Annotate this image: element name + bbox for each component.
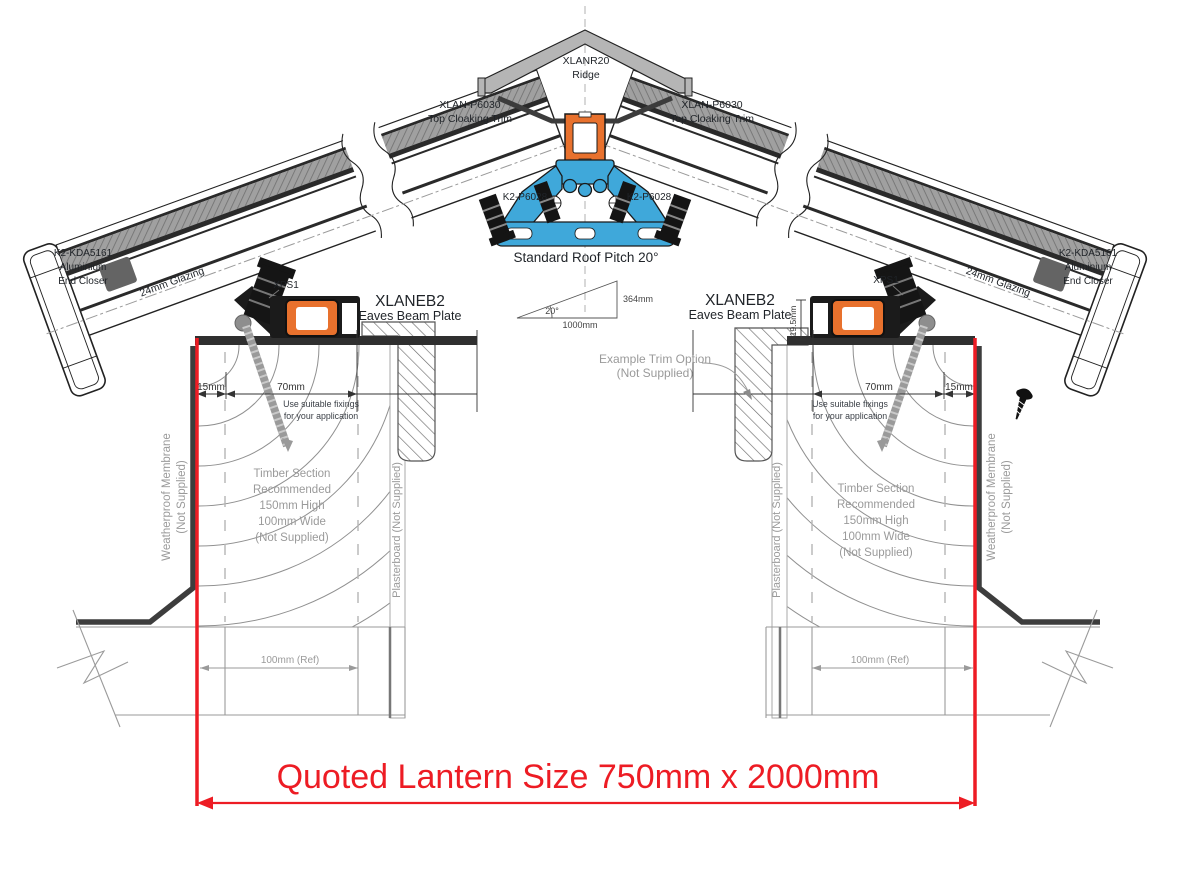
membrane-note-line1-right: Weatherproof Membrane (986, 433, 998, 561)
end-closer-material-left: Aluminium (60, 262, 107, 273)
membrane-note-line1-left: Weatherproof Membrane (161, 433, 173, 561)
pitch-angle-label: 20° (545, 306, 559, 316)
xps1-label-right: XPS1 (873, 275, 899, 286)
loose-screw-icon (1008, 386, 1034, 422)
dim-15mm-right: 15mm (945, 382, 973, 393)
plasterboard-note-left: Plasterboard (Not Supplied) (391, 462, 403, 598)
timber-note-line4-left: 100mm Wide (258, 516, 326, 528)
ridge-fixing-code-left: K2-P6028 (503, 192, 548, 203)
wall-ref-right: 100mm (Ref) (851, 655, 909, 666)
timber-note-line1-right: Timber Section (838, 483, 915, 495)
top-cloaking-code-left: XLAN-P6030 (439, 99, 500, 111)
end-closer-name-left: End Closer (58, 276, 108, 287)
timber-note-line3-right: 150mm High (843, 515, 908, 527)
plasterboard-note-right: Plasterboard (Not Supplied) (771, 462, 783, 598)
fixing-note-line1-right: Use suitable fixings (812, 399, 888, 409)
pitch-rise-label: 364mm (623, 294, 653, 304)
membrane-note-line2-right: (Not Supplied) (1001, 460, 1013, 534)
membrane-note-line2-left: (Not Supplied) (176, 460, 188, 534)
timber-note-line2-left: Recommended (253, 484, 331, 496)
xps1-label-left: XPS1 (273, 280, 299, 291)
timber-note-line2-right: Recommended (837, 499, 915, 511)
dim-arrow-right (959, 797, 975, 810)
timber-note-line5-left: (Not Supplied) (255, 532, 329, 544)
eaves-beam-code-left: XLANEB2 (375, 293, 445, 310)
fixing-note-line2-left: for your application (284, 411, 358, 421)
end-closer-code-left: K2-KDA5161 (54, 248, 113, 259)
eaves-beam-code-right: XLANEB2 (705, 292, 775, 309)
ridge-code-label: XLANR20 (563, 55, 610, 67)
dim-15mm-left: 15mm (197, 382, 225, 393)
ridge-fixing-code-right: K2-P6028 (627, 192, 672, 203)
dim-70mm-right: 70mm (865, 382, 893, 393)
top-cloaking-name-left: Top Cloaking Trim (428, 113, 512, 125)
dim-arrow-left (197, 797, 213, 810)
timber-note-line1-left: Timber Section (254, 468, 331, 480)
roof-lantern-section-drawing: XLANR20 Ridge XLAN-P6030 Top Cloaking Tr… (0, 0, 1184, 872)
fixing-note-line1-left: Use suitable fixings (283, 399, 359, 409)
example-trim-line1: Example Trim Option (599, 352, 711, 366)
pitch-triangle (517, 281, 617, 318)
pitch-base-label: 1000mm (562, 320, 597, 330)
timber-note-line5-right: (Not Supplied) (839, 547, 913, 559)
eaves-beam-name-left: Eaves Beam Plate (359, 309, 462, 323)
dim-19_5mm-right: 19.5mm (788, 306, 798, 337)
end-closer-name-right: End Closer (1063, 276, 1113, 287)
example-trim-line2: (Not Supplied) (617, 366, 694, 380)
dim-70mm-left: 70mm (277, 382, 305, 393)
fixing-note-line2-right: for your application (813, 411, 887, 421)
end-closer-code-right: K2-KDA5161 (1059, 248, 1118, 259)
quoted-size-label: Quoted Lantern Size 750mm x 2000mm (277, 758, 880, 796)
technical-drawing-canvas: XLANR20 Ridge XLAN-P6030 Top Cloaking Tr… (0, 0, 1184, 872)
top-cloaking-name-right: Top Cloaking Trim (670, 113, 754, 125)
pitch-note-label: Standard Roof Pitch 20° (514, 250, 659, 265)
ridge-name-label: Ridge (572, 69, 600, 81)
eaves-beam-name-right: Eaves Beam Plate (689, 308, 792, 322)
timber-note-line4-right: 100mm Wide (842, 531, 910, 543)
timber-note-line3-left: 150mm High (259, 500, 324, 512)
end-closer-material-right: Aluminium (1065, 262, 1112, 273)
wall-ref-left: 100mm (Ref) (261, 655, 319, 666)
top-cloaking-code-right: XLAN-P6030 (681, 99, 742, 111)
